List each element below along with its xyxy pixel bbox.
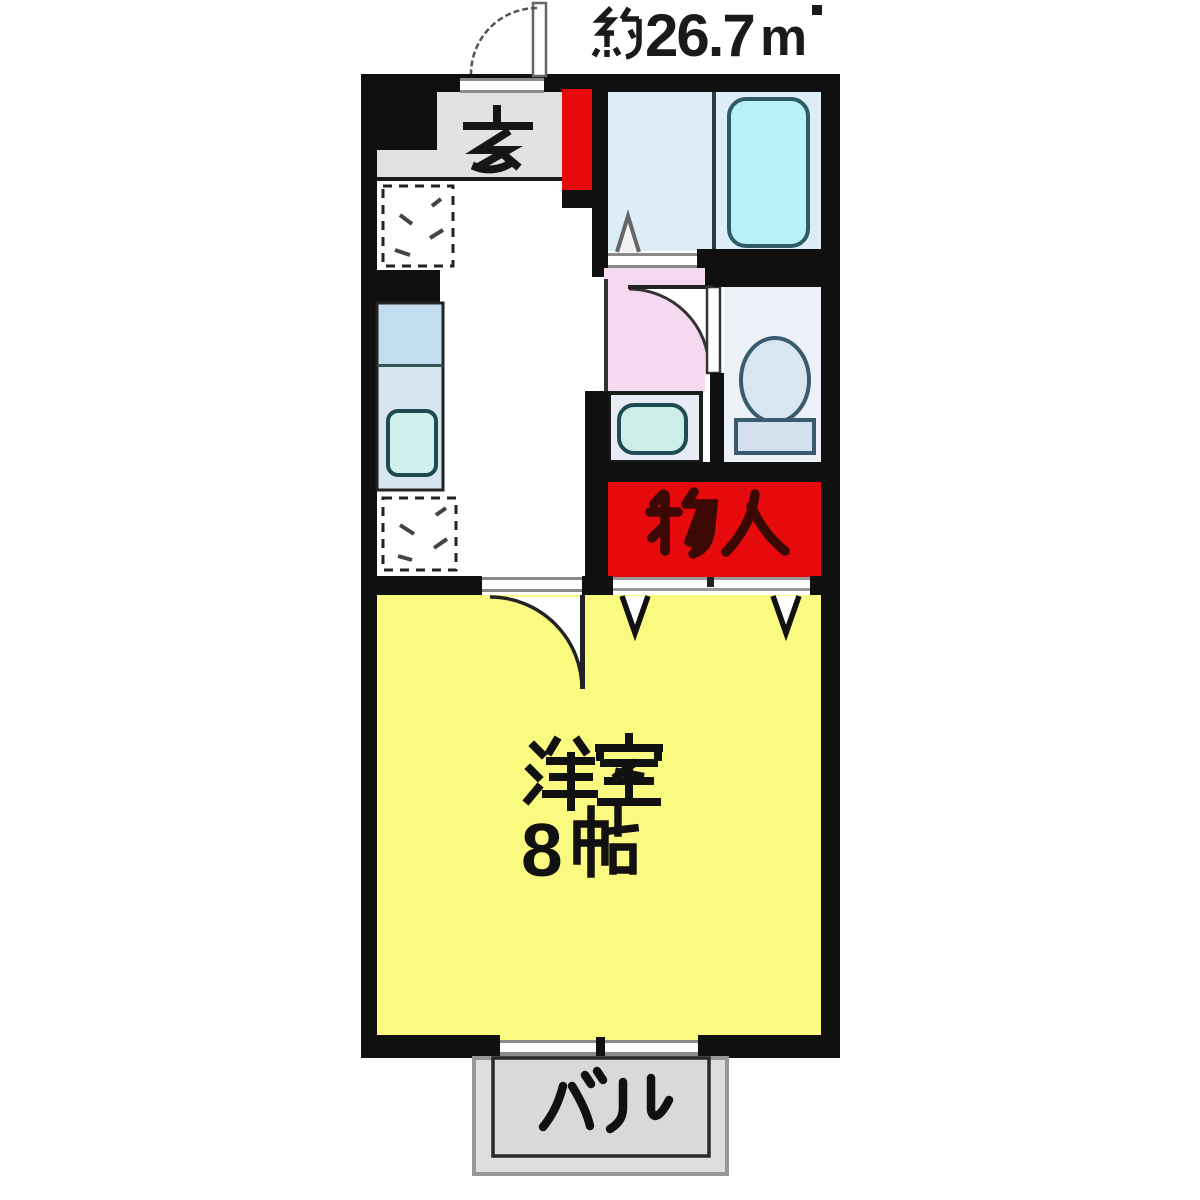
svg-text:8: 8 [521, 808, 563, 892]
svg-text:m: m [760, 8, 807, 67]
svg-text:26.7: 26.7 [645, 2, 754, 69]
